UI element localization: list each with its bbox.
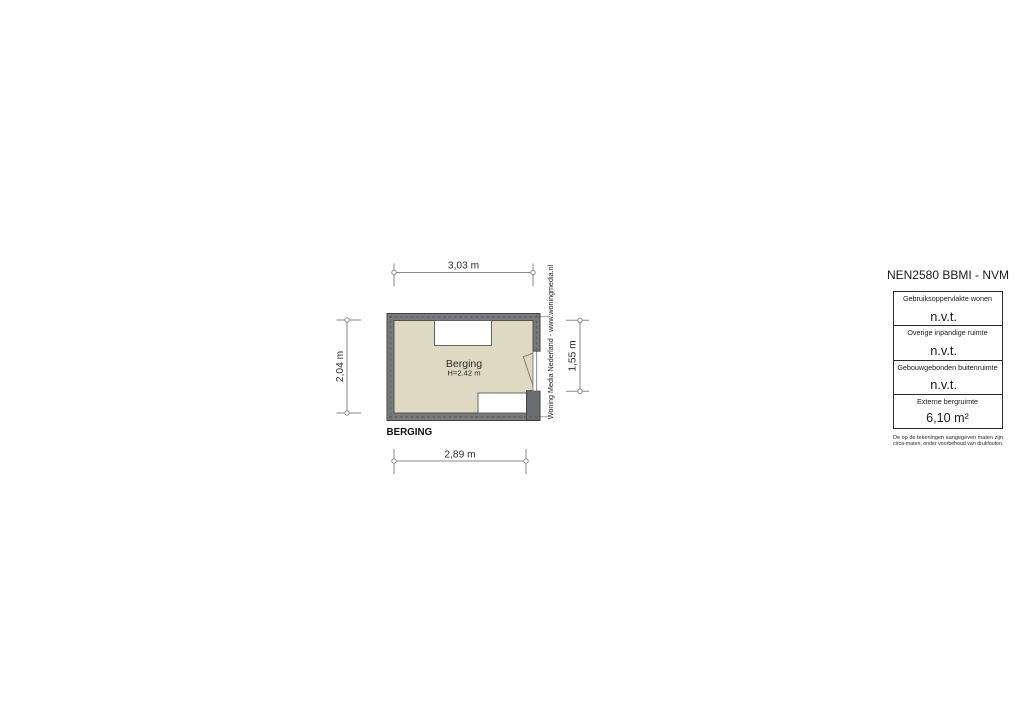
svg-text:H=2.42 m: H=2.42 m	[447, 369, 480, 378]
svg-text:3,03 m: 3,03 m	[448, 261, 479, 272]
svg-text:2,89 m: 2,89 m	[444, 449, 475, 460]
svg-text:BERGING: BERGING	[387, 427, 433, 438]
svg-text:1,55 m: 1,55 m	[568, 340, 579, 371]
svg-text:Woning Media Nederland - www.w: Woning Media Nederland - www.woningmedia…	[546, 264, 555, 419]
svg-text:2,04 m: 2,04 m	[335, 351, 346, 382]
